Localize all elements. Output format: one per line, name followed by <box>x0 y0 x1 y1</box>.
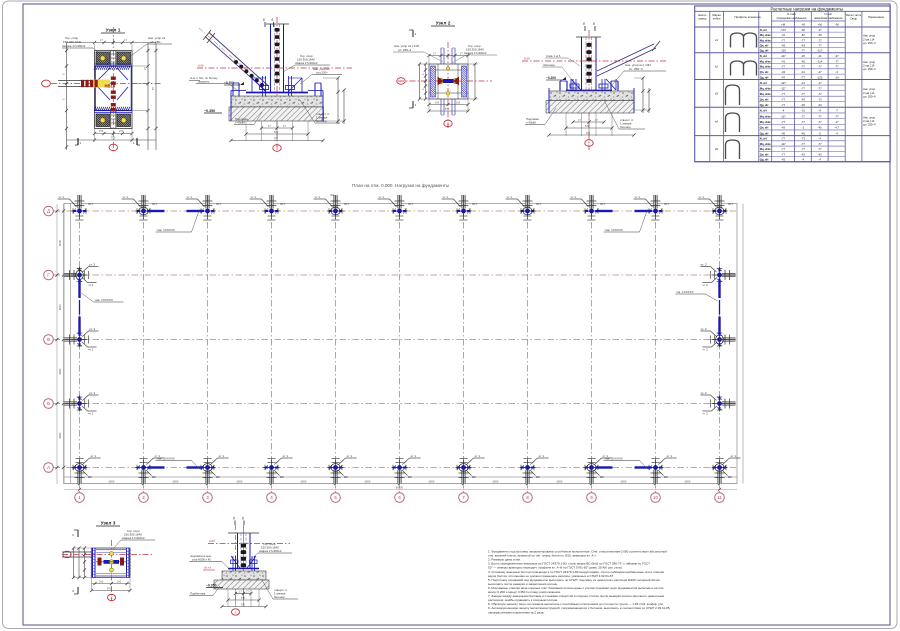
svg-text:-43: -43 <box>801 98 805 102</box>
svg-text:сварка 17х400х2: сварка 17х400х2 <box>259 549 282 553</box>
svg-text:чт 1: чт 1 <box>411 454 417 458</box>
svg-text:Qп, кН: Qп, кН <box>760 126 769 130</box>
svg-text:−М: −М <box>801 22 806 26</box>
svg-text:Мq, кНм: Мq, кНм <box>760 92 771 96</box>
svg-text:г: г <box>588 141 589 145</box>
svg-text:сварка 17х400х2: сварка 17х400х2 <box>62 44 86 48</box>
svg-text:Расчетные нагрузки на фундамен: Расчетные нагрузки на фундаменты <box>770 7 843 12</box>
svg-text:-77: -77 <box>801 49 805 53</box>
svg-text:тяж. 1ХХХХХ: тяж. 1ХХХХХ <box>605 228 623 232</box>
svg-text:Подбетонка: Подбетонка <box>190 592 206 596</box>
svg-text:-45: -45 <box>801 131 805 135</box>
svg-text:чт 2: чт 2 <box>703 348 709 352</box>
svg-text:д: д <box>447 122 449 126</box>
svg-text:4СТ: 4СТ <box>472 202 477 206</box>
svg-text:А-А: А-А <box>190 76 195 80</box>
svg-text:А: А <box>47 465 50 470</box>
svg-text:-77: -77 <box>781 98 785 102</box>
svg-text:-77: -77 <box>835 65 839 69</box>
svg-text:п 40х80: п 40х80 <box>526 121 536 125</box>
svg-text:чт 1: чт 1 <box>123 195 129 199</box>
svg-text:+М: +М <box>818 22 823 26</box>
svg-text:Узел 3: Узел 3 <box>101 521 116 527</box>
svg-text:4СТ: 4СТ <box>536 202 541 206</box>
svg-text:ВЗ: ВЗ <box>88 475 92 479</box>
svg-text:-77: -77 <box>781 38 785 42</box>
svg-text:-41: -41 <box>781 59 785 63</box>
svg-text:-43: -43 <box>818 152 822 156</box>
svg-text:2?0: 2?0 <box>99 129 104 133</box>
svg-text:-77: -77 <box>801 65 805 69</box>
svg-text:чт 1: чт 1 <box>571 195 577 199</box>
svg-text:к4: к4 <box>715 120 718 124</box>
svg-text:Анк. упор: Анк. упор <box>863 60 875 64</box>
svg-text:-47: -47 <box>781 75 785 79</box>
svg-text:-77: -77 <box>781 103 785 107</box>
svg-text:9?0: 9?0 <box>241 604 246 607</box>
svg-text:-77: -77 <box>801 120 805 124</box>
svg-text:-77: -77 <box>818 142 822 146</box>
svg-text:сварка 17х400х2: сварка 17х400х2 <box>295 61 318 65</box>
svg-text:-77: -77 <box>835 114 839 118</box>
svg-text:б: б <box>593 22 595 26</box>
svg-text:4СТ: 4СТ <box>152 202 157 206</box>
svg-text:сварка 17х400х2: сварка 17х400х2 <box>122 536 145 540</box>
svg-text:Qп, кН: Qп, кН <box>760 44 769 48</box>
svg-text:Qд, кН: Qд, кН <box>760 49 769 53</box>
svg-text:сп. 250−4: сп. 250−4 <box>629 67 643 71</box>
svg-text:-117: -117 <box>781 142 787 146</box>
svg-text:б: б <box>263 18 265 22</box>
svg-text:-117: -117 <box>817 49 823 53</box>
svg-text:соц 200−: соц 200− <box>316 71 328 75</box>
svg-text:0.00: 0.00 <box>524 57 530 61</box>
svg-text:дл. 250−4: дл. 250−4 <box>863 67 876 71</box>
svg-text:лакокрасочными покрытиями за 2: лакокрасочными покрытиями за 2 раза. <box>488 610 544 614</box>
svg-text:−0.200: −0.200 <box>546 76 556 80</box>
svg-text:Профиль элемента: Профиль элемента <box>735 15 761 19</box>
svg-text:-77: -77 <box>801 114 805 118</box>
svg-text:тяж. 1ХХХХХ: тяж. 1ХХХХХ <box>157 457 175 461</box>
svg-text:-77: -77 <box>781 65 785 69</box>
svg-text:2 шв.[ 14: 2 шв.[ 14 <box>863 119 875 123</box>
svg-text:В: В <box>47 337 50 342</box>
svg-text:-87: -87 <box>801 33 805 37</box>
svg-text:2 шв.[ 14: 2 шв.[ 14 <box>863 37 875 41</box>
svg-text:5?0: 5?0 <box>241 597 246 600</box>
svg-text:-43: -43 <box>781 44 785 48</box>
svg-text:Свгор: Свгор <box>850 17 857 20</box>
svg-text:-73: -73 <box>801 137 805 141</box>
svg-text:-47: -47 <box>818 70 822 74</box>
svg-text:р-ра М200 п 40: р-ра М200 п 40 <box>192 558 211 562</box>
svg-text:-45: -45 <box>801 54 805 58</box>
svg-text:ВЗ: ВЗ <box>472 475 476 479</box>
svg-text:5?0: 5?0 <box>111 136 116 140</box>
svg-text:Примечание: Примечание <box>868 15 885 19</box>
svg-text:-17: -17 <box>818 28 822 32</box>
svg-text:Qп, кН: Qп, кН <box>760 152 769 156</box>
svg-text:2ч0: 2ч0 <box>117 581 122 584</box>
svg-text:-77: -77 <box>835 59 839 63</box>
svg-text:уз. 2: уз. 2 <box>701 262 708 266</box>
svg-text:-43: -43 <box>781 70 785 74</box>
svg-text:-43: -43 <box>801 44 805 48</box>
svg-text:N, кН: N, кН <box>760 109 767 113</box>
svg-text:чт 1: чт 1 <box>315 195 321 199</box>
svg-text:4СТ: 4СТ <box>664 202 669 206</box>
svg-text:чт 1: чт 1 <box>91 454 97 458</box>
svg-text:ВЗ: ВЗ <box>280 475 284 479</box>
svg-text:-77: -77 <box>801 92 805 96</box>
svg-text:+М: +М <box>781 22 786 26</box>
svg-text:НВ14: НВ14 <box>105 84 116 89</box>
svg-text:чт 1: чт 1 <box>635 195 641 199</box>
svg-text:N, кН: N, кН <box>760 137 767 141</box>
svg-text:ВЗ: ВЗ <box>728 475 732 479</box>
svg-text:N, кН: N, кН <box>760 81 767 85</box>
svg-text:тяж. 1ХХХХХ: тяж. 1ХХХХХ <box>605 457 623 461</box>
svg-text:4СТ: 4СТ <box>728 202 733 206</box>
svg-text:Ур.ч.п.: Ур.ч.п. <box>204 566 212 570</box>
svg-text:помер: помер <box>698 16 707 20</box>
svg-text:б: б <box>235 610 237 614</box>
svg-text:-4,7: -4,7 <box>834 126 839 130</box>
svg-text:-43: -43 <box>818 103 822 107</box>
svg-text:6000: 6000 <box>109 479 115 483</box>
svg-text:бетонир.: бетонир. <box>274 595 286 599</box>
svg-text:5?0: 5?0 <box>274 131 279 134</box>
svg-text:-37: -37 <box>835 54 839 58</box>
svg-text:4СТ: 4СТ <box>600 202 605 206</box>
svg-text:дл. 250−4: дл. 250−4 <box>863 41 876 45</box>
svg-text:2ч0: 2ч0 <box>456 102 461 105</box>
svg-text:4СТ: 4СТ <box>88 202 93 206</box>
svg-text:-77: -77 <box>818 114 822 118</box>
svg-text:-17: -17 <box>835 120 839 124</box>
svg-text:-117: -117 <box>781 114 787 118</box>
svg-text:Мq, кНм: Мq, кНм <box>760 33 771 37</box>
svg-text:тяж. 1ХХХХХ: тяж. 1ХХХХХ <box>95 298 113 302</box>
svg-text:Мq, кНм: Мq, кНм <box>760 114 771 118</box>
svg-text:4СТ: 4СТ <box>408 202 413 206</box>
svg-text:Св. 1ХХХХХ: Св. 1ХХХХХ <box>677 290 694 294</box>
svg-text:уз. 3: уз. 3 <box>89 262 96 266</box>
svg-text:чт 2: чт 2 <box>703 283 709 287</box>
svg-text:60000: 60000 <box>396 485 404 489</box>
svg-text:Д: Д <box>47 209 50 214</box>
svg-text:5?0: 5?0 <box>445 108 450 111</box>
svg-text:6000: 6000 <box>621 479 627 483</box>
svg-text:(аварийная комбинация): (аварийная комбинация) <box>814 17 843 20</box>
svg-text:-45: -45 <box>801 59 805 63</box>
svg-text:чт 2: чт 2 <box>88 283 94 287</box>
svg-text:дл. 250−4: дл. 250−4 <box>863 94 876 98</box>
svg-text:Мq, кНм: Мq, кНм <box>760 142 771 146</box>
svg-text:чт 1: чт 1 <box>731 454 737 458</box>
svg-text:Б: Б <box>47 401 50 406</box>
svg-text:-77: -77 <box>801 75 805 79</box>
svg-text:чт 1: чт 1 <box>539 454 545 458</box>
svg-text:ВЗ: ВЗ <box>664 475 668 479</box>
svg-text:-14: -14 <box>801 81 805 85</box>
svg-text:4СТ: 4СТ <box>344 202 349 206</box>
svg-text:4СТ: 4СТ <box>280 202 285 206</box>
svg-text:-41: -41 <box>818 54 822 58</box>
svg-text:2 шв.[ 14: 2 шв.[ 14 <box>863 91 875 95</box>
svg-text:6000: 6000 <box>58 432 62 438</box>
svg-text:(порядковая комбинация): (порядковая комбинация) <box>777 17 807 20</box>
svg-text:6000: 6000 <box>173 479 179 483</box>
svg-text:б: б <box>233 517 235 521</box>
svg-text:уз. 2: уз. 2 <box>701 327 708 331</box>
svg-text:уз. 2: уз. 2 <box>701 391 708 395</box>
svg-text:6000: 6000 <box>685 479 691 483</box>
svg-text:5?0: 5?0 <box>585 125 590 128</box>
svg-text:6000: 6000 <box>365 479 371 483</box>
svg-text:б: б <box>272 18 274 22</box>
svg-text:Qп, кН: Qп, кН <box>760 70 769 74</box>
svg-text:-31: -31 <box>801 109 805 113</box>
svg-text:-77: -77 <box>801 147 805 151</box>
svg-text:-77: -77 <box>818 92 822 96</box>
svg-text:−М: −М <box>835 22 840 26</box>
svg-text:-73: -73 <box>818 98 822 102</box>
svg-text:Qд, кН: Qд, кН <box>760 103 769 107</box>
svg-text:-77: -77 <box>781 92 785 96</box>
svg-text:чт 1: чт 1 <box>379 195 385 199</box>
svg-text:6000: 6000 <box>58 368 62 374</box>
svg-text:к5: к5 <box>715 147 718 151</box>
svg-text:6000: 6000 <box>58 304 62 310</box>
svg-text:-114: -114 <box>817 59 823 63</box>
svg-text:-117: -117 <box>781 86 787 90</box>
svg-text:чт 1: чт 1 <box>667 454 673 458</box>
svg-text:-77: -77 <box>818 44 822 48</box>
svg-text:чт 1: чт 1 <box>283 454 289 458</box>
svg-text:ВЗ: ВЗ <box>600 475 604 479</box>
svg-text:уз. 3: уз. 3 <box>89 327 96 331</box>
svg-text:2ч0: 2ч0 <box>435 102 440 105</box>
svg-text:чт 1: чт 1 <box>699 195 705 199</box>
svg-text:чт 1: чт 1 <box>347 454 353 458</box>
svg-text:6000: 6000 <box>237 479 243 483</box>
svg-text:N, кН: N, кН <box>760 28 767 32</box>
svg-text:10: 10 <box>653 495 658 500</box>
svg-text:б: б <box>111 596 113 600</box>
svg-text:−0.350: −0.350 <box>206 584 217 588</box>
svg-text:-45: -45 <box>818 33 822 37</box>
svg-text:-43: -43 <box>781 158 785 162</box>
svg-text:0.00: 0.00 <box>209 539 215 543</box>
svg-text:2 шв.[ 14: 2 шв.[ 14 <box>863 64 875 68</box>
svg-text:N max: N max <box>787 12 796 16</box>
svg-text:6000: 6000 <box>58 240 62 246</box>
svg-text:Qд, кН: Qд, кН <box>760 158 769 162</box>
svg-text:11: 11 <box>717 495 722 500</box>
svg-text:6000: 6000 <box>429 479 435 483</box>
svg-text:Qп, кН: Qп, кН <box>760 98 769 102</box>
svg-text:-77: -77 <box>818 65 822 69</box>
svg-text:г: г <box>66 553 67 557</box>
svg-text:Мq, кНм: Мq, кНм <box>760 65 771 69</box>
svg-text:чт 1: чт 1 <box>251 195 257 199</box>
svg-text:5?0: 5?0 <box>107 588 112 591</box>
svg-text:-77: -77 <box>818 86 822 90</box>
svg-text:-77: -77 <box>801 86 805 90</box>
svg-text:-77: -77 <box>801 142 805 146</box>
svg-text:ВЗ: ВЗ <box>536 475 540 479</box>
svg-text:Мq, кНм: Мq, кНм <box>760 147 771 151</box>
svg-text:Qд, кН: Qд, кН <box>760 75 769 79</box>
svg-text:-41: -41 <box>801 70 805 74</box>
svg-text:-77: -77 <box>781 137 785 141</box>
svg-text:окрасить: окрасить <box>198 80 210 84</box>
svg-text:б: б <box>583 22 585 26</box>
svg-text:либое: либое <box>713 16 721 20</box>
svg-text:обетонир.: обетонир. <box>543 63 556 67</box>
svg-text:−0.350: −0.350 <box>204 109 215 113</box>
svg-text:чт 1: чт 1 <box>59 195 65 199</box>
svg-text:ВЗ: ВЗ <box>344 475 348 479</box>
svg-text:-41: -41 <box>781 33 785 37</box>
svg-text:-173: -173 <box>780 28 786 32</box>
svg-text:уз. 3: уз. 3 <box>89 391 96 395</box>
svg-text:-45: -45 <box>781 131 785 135</box>
svg-text:-77: -77 <box>818 147 822 151</box>
svg-text:сл. 250−4: сл. 250−4 <box>398 48 412 52</box>
svg-text:чт 1: чт 1 <box>187 195 193 199</box>
svg-text:9?0: 9?0 <box>274 138 279 141</box>
svg-text:-77: -77 <box>781 152 785 156</box>
svg-text:2?0: 2?0 <box>119 129 124 133</box>
svg-text:Анк. упор: Анк. упор <box>863 87 875 91</box>
svg-text:6000: 6000 <box>493 479 499 483</box>
svg-text:Мq, кНм: Мq, кНм <box>760 38 771 42</box>
svg-text:6000: 6000 <box>557 479 563 483</box>
svg-text:-117: -117 <box>781 54 787 58</box>
svg-text:0.00: 0.00 <box>198 64 204 68</box>
svg-text:чт 1: чт 1 <box>507 195 513 199</box>
svg-text:Мq, кНм: Мq, кНм <box>760 59 771 63</box>
svg-text:-77: -77 <box>818 38 822 42</box>
svg-text:-17: -17 <box>818 81 822 85</box>
svg-text:-45: -45 <box>801 103 805 107</box>
svg-text:чт 2: чт 2 <box>88 348 94 352</box>
svg-text:Qд, кН: Qд, кН <box>760 131 769 135</box>
svg-text:к2: к2 <box>715 64 718 68</box>
svg-text:тяж. 1ХХХХХ: тяж. 1ХХХХХ <box>157 228 175 232</box>
svg-text:п 40х80: п 40х80 <box>235 121 245 125</box>
svg-text:2ч0: 2ч0 <box>99 581 104 584</box>
svg-text:чт 1: чт 1 <box>443 195 449 199</box>
svg-text:бетонир.: бетонир. <box>620 125 632 129</box>
svg-text:дл. 250−4: дл. 250−4 <box>863 122 876 126</box>
svg-text:-77: -77 <box>801 38 805 42</box>
svg-text:Слив. 1 м.б.: Слив. 1 м.б. <box>546 54 561 58</box>
svg-text:-43: -43 <box>801 152 805 156</box>
svg-text:План на отм. 0.000. Нагрузки н: План на отм. 0.000. Нагрузки на фундамен… <box>352 183 449 188</box>
svg-text:-127: -127 <box>780 81 786 85</box>
svg-text:б: б <box>242 517 244 521</box>
svg-text:Анк. упор: Анк. упор <box>863 34 875 38</box>
svg-text:г: г <box>400 79 401 83</box>
svg-text:Мq, кНм: Мq, кНм <box>760 120 771 124</box>
svg-text:-123: -123 <box>817 75 823 79</box>
svg-text:6000: 6000 <box>301 479 307 483</box>
svg-text:Узел 2: Узел 2 <box>436 21 451 27</box>
svg-text:-92: -92 <box>801 28 805 32</box>
svg-text:-43: -43 <box>781 126 785 130</box>
svg-text:-77: -77 <box>818 120 822 124</box>
svg-text:ВЗ: ВЗ <box>216 475 220 479</box>
svg-text:N, кН: N, кН <box>760 54 767 58</box>
svg-text:ВЗ: ВЗ <box>408 475 412 479</box>
svg-text:4СТ: 4СТ <box>216 202 221 206</box>
svg-text:чт 2: чт 2 <box>703 412 709 416</box>
svg-text:чт 1: чт 1 <box>475 454 481 458</box>
svg-text:ВЗ: ВЗ <box>152 475 156 479</box>
svg-text:чт 2: чт 2 <box>88 412 94 416</box>
svg-text:-77: -77 <box>781 120 785 124</box>
svg-text:9?0: 9?0 <box>586 132 591 135</box>
svg-text:N min: N min <box>824 12 832 16</box>
svg-text:к3: к3 <box>715 92 718 96</box>
svg-text:сварка 17х400х2: сварка 17х400х2 <box>464 51 487 55</box>
svg-text:Мq, кНм: Мq, кНм <box>760 86 771 90</box>
svg-text:-125: -125 <box>780 49 786 53</box>
svg-text:-77: -77 <box>781 147 785 151</box>
svg-text:-14: -14 <box>835 75 839 79</box>
svg-text:-45: -45 <box>818 126 822 130</box>
svg-text:чт 1: чт 1 <box>219 454 225 458</box>
svg-text:к1: к1 <box>715 38 718 42</box>
svg-text:Анк. упор: Анк. упор <box>863 115 875 119</box>
